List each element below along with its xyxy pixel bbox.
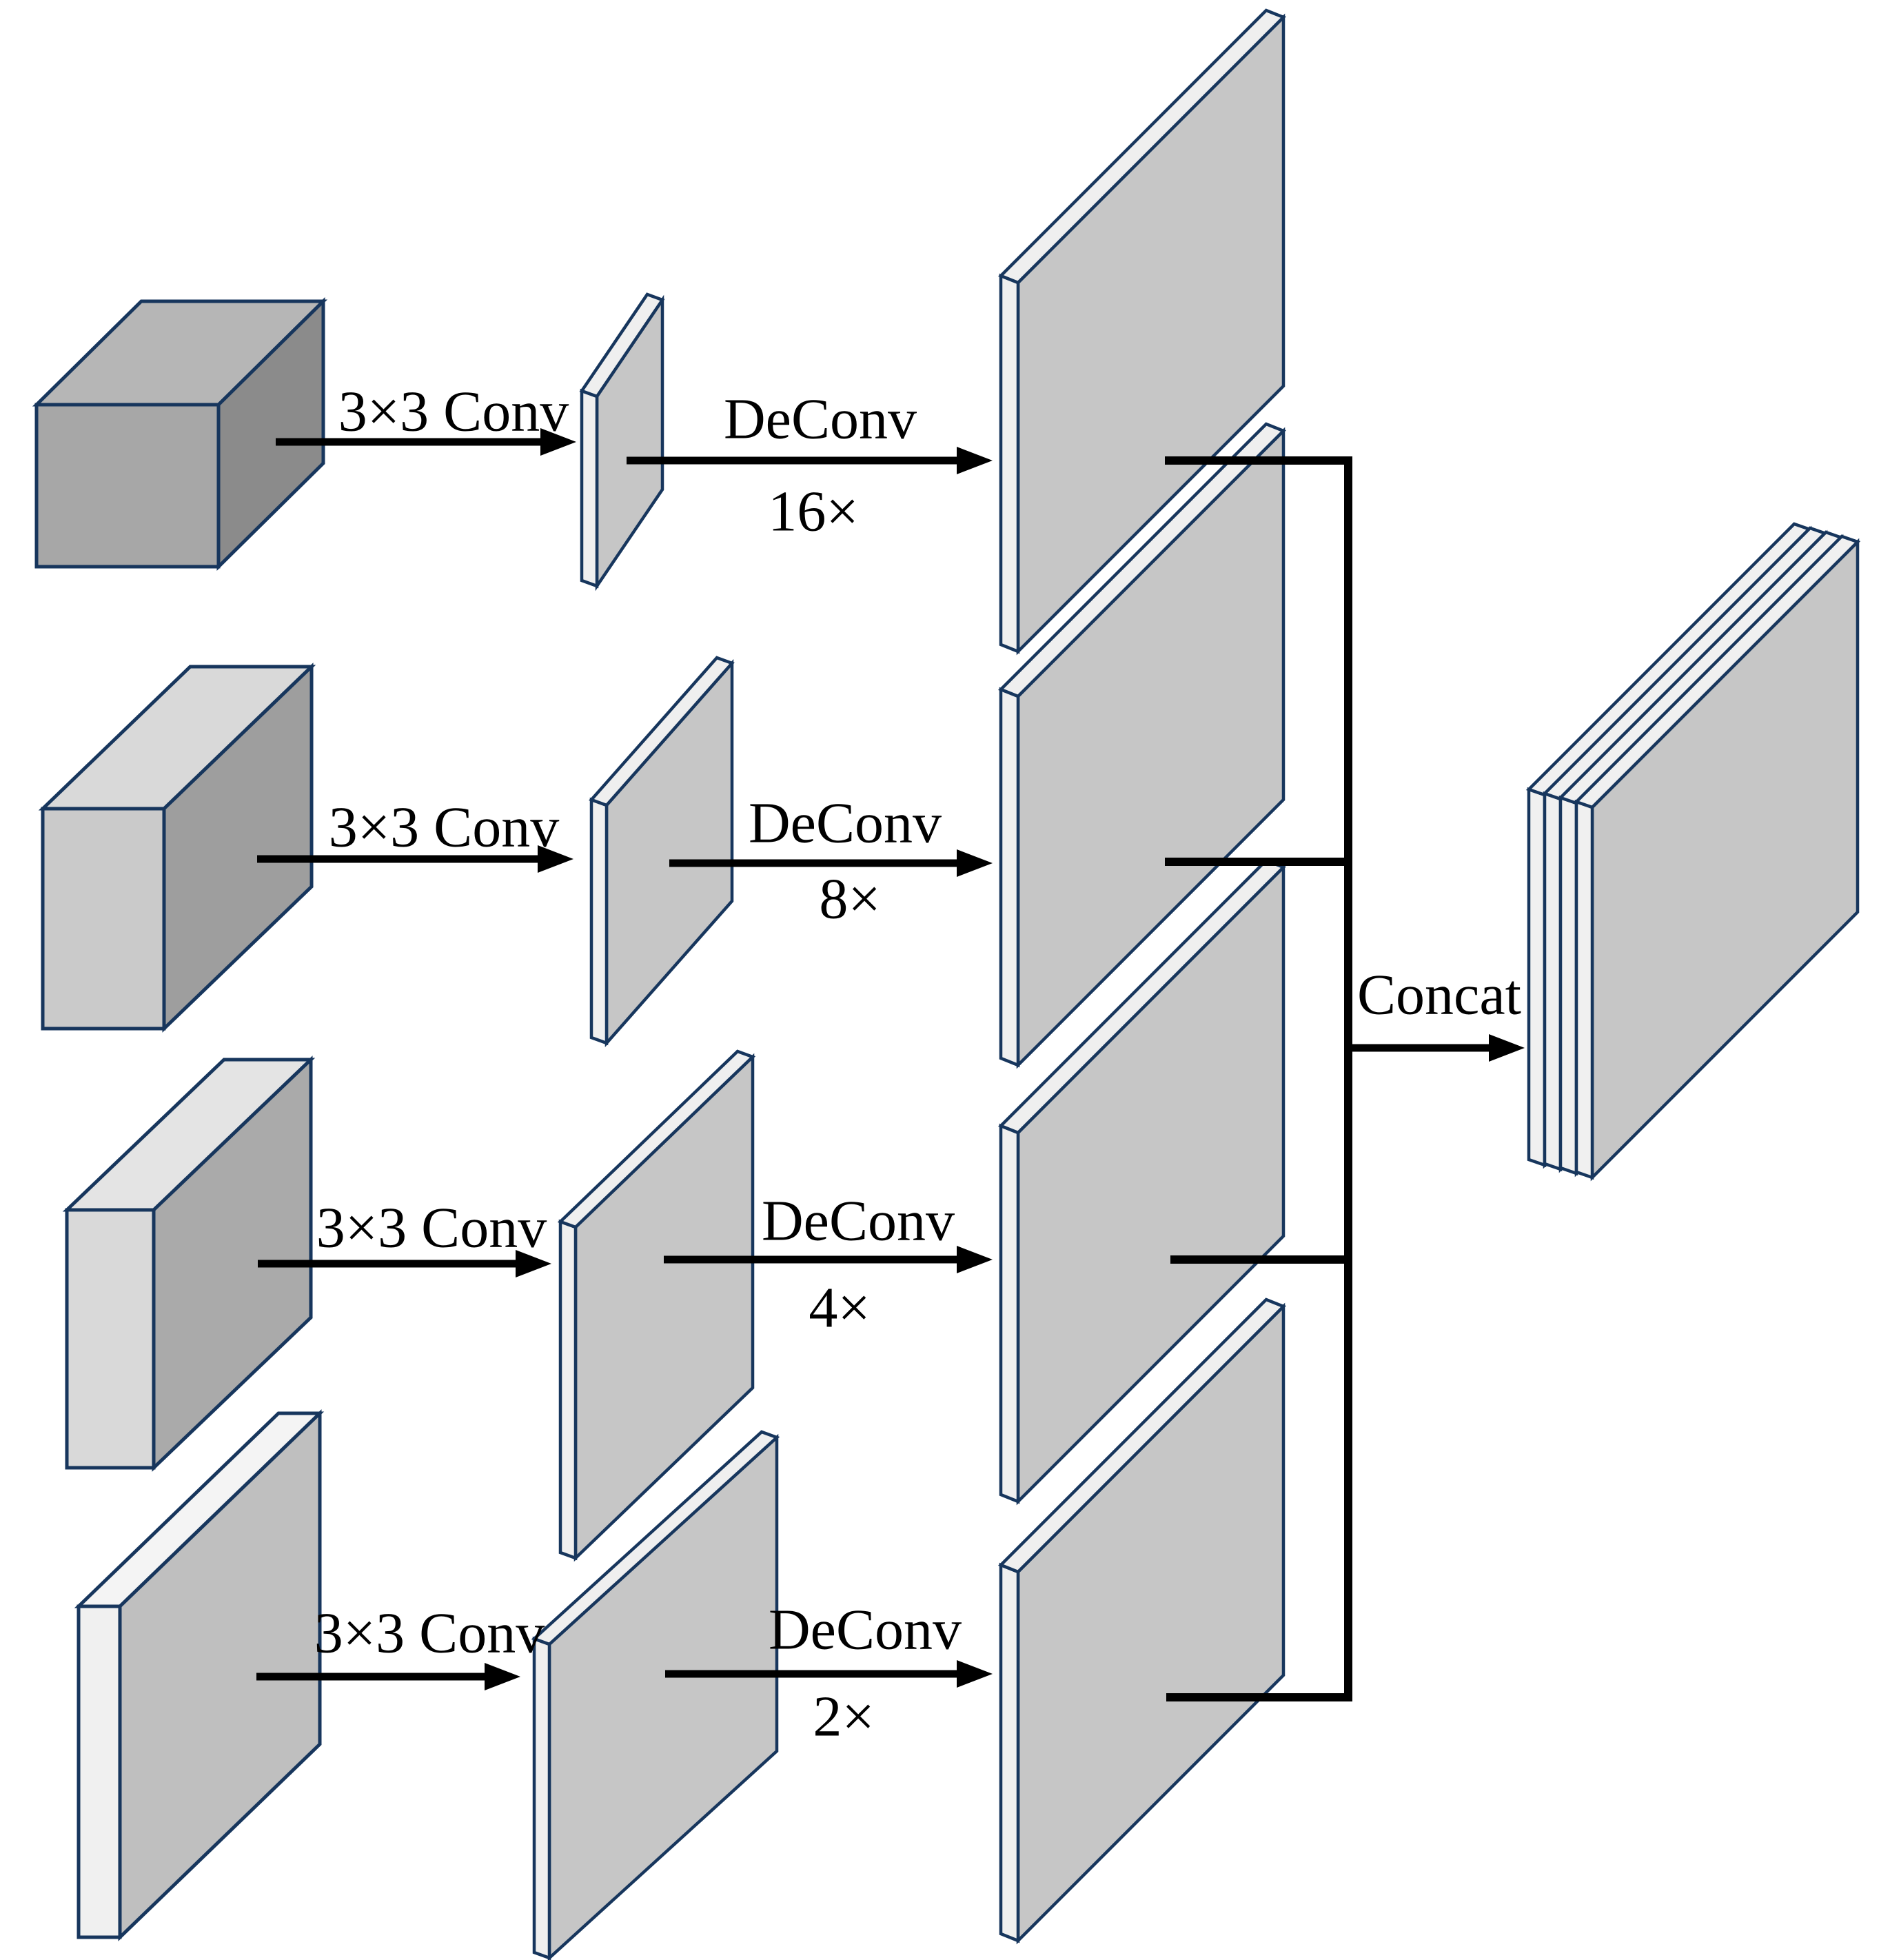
shapes-layer <box>37 10 1858 1958</box>
deconv-arrow-2-head <box>957 849 993 877</box>
concat-arrow-head <box>1489 1034 1525 1062</box>
input-box-4-front <box>79 1606 120 1937</box>
conv-plate-3-left-edge <box>560 1222 576 1558</box>
conv-label-row2: 3×3 Conv <box>329 796 559 860</box>
deconv-plate-3-left-edge <box>1001 1126 1018 1502</box>
conv-plate-2-left-edge <box>591 800 607 1043</box>
deconv-label-row1: DeConv <box>724 387 917 452</box>
deconv-plate-4-left-edge <box>1001 1565 1018 1941</box>
conv-plate-1-left-edge <box>582 391 597 586</box>
scale-label-row3: 4× <box>809 1276 870 1340</box>
deconv-arrow-1-head <box>957 447 993 474</box>
conv-label-row1: 3×3 Conv <box>338 380 569 444</box>
deconv-label-row4: DeConv <box>769 1598 962 1662</box>
output-stack-layer-4-left-edge <box>1576 802 1592 1178</box>
conv-label-row4: 3×3 Conv <box>314 1602 545 1666</box>
scale-label-row1: 16× <box>768 480 858 544</box>
deconv-plate-2-left-edge <box>1001 689 1018 1065</box>
input-box-1-front <box>37 405 219 567</box>
output-stack-layer-2-left-edge <box>1545 794 1561 1169</box>
deconv-label-row2: DeConv <box>749 791 942 856</box>
output-stack-layer-3-left-edge <box>1561 798 1576 1173</box>
deconv-arrow-4-head <box>957 1660 993 1688</box>
scale-label-row2: 8× <box>819 867 880 931</box>
output-stack-layer-1-left-edge <box>1529 789 1545 1165</box>
deconv-plate-1-left-edge <box>1001 276 1018 651</box>
conv-label-row3: 3×3 Conv <box>316 1196 547 1260</box>
diagram-page: 3×3 Conv DeConv 16× 3×3 Conv DeConv 8× 3… <box>0 0 1890 1960</box>
conv-arrow-4-head <box>485 1663 520 1690</box>
deconv-label-row3: DeConv <box>762 1189 955 1253</box>
input-box-3-front <box>67 1210 154 1468</box>
concat-label: Concat <box>1357 963 1521 1027</box>
input-box-2-front <box>43 809 164 1029</box>
conv-plate-4-left-edge <box>534 1639 549 1958</box>
architecture-diagram: 3×3 Conv DeConv 16× 3×3 Conv DeConv 8× 3… <box>0 0 1890 1960</box>
deconv-arrow-3-head <box>957 1246 993 1273</box>
scale-label-row4: 2× <box>813 1685 874 1749</box>
